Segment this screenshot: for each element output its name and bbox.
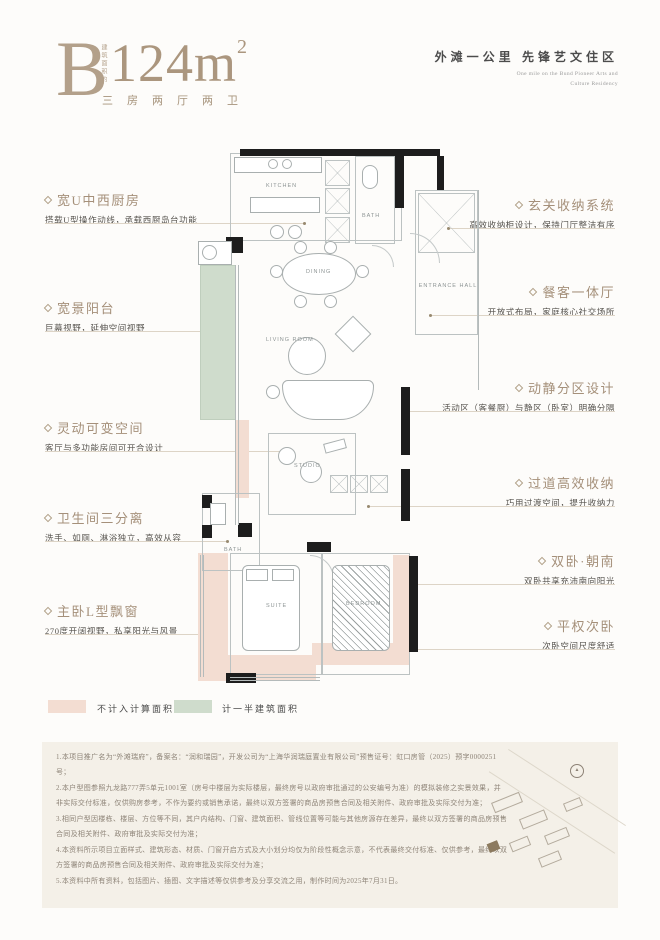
north-arrow-icon: ▲ bbox=[570, 764, 584, 778]
window-line bbox=[230, 677, 320, 678]
room-label-bath1: BATH bbox=[362, 213, 380, 219]
area-exponent: 2 bbox=[237, 36, 248, 58]
dining-chair bbox=[270, 265, 283, 278]
area-value: 124m2 bbox=[110, 36, 248, 90]
room-label-kitchen: KITCHEN bbox=[266, 183, 297, 189]
leader-line bbox=[45, 634, 208, 635]
wall-segment bbox=[307, 542, 331, 552]
stool-icon bbox=[288, 225, 302, 239]
disclaimer-line: 4.本资料所示项目立面样式、建筑形态、材质、门窗开启方式及大小划分均仅为阶段性概… bbox=[56, 843, 508, 873]
road-line bbox=[508, 749, 626, 826]
disclaimer-text: 1.本项目推广名为“外滩瑞府”，备案名：“润和瑞园”，开发公司为“上海华润瑞庭置… bbox=[56, 750, 508, 890]
diamond-bullet-icon bbox=[44, 514, 52, 522]
diamond-bullet-icon bbox=[44, 304, 52, 312]
diamond-bullet-icon bbox=[515, 201, 523, 209]
window-line bbox=[238, 265, 239, 525]
tagline-en-line1: One mile on the Bund Pioneer Arts and bbox=[517, 70, 618, 80]
room-label-living: LIVING ROOM bbox=[266, 337, 314, 343]
tagline-cn: 外滩一公里 先锋艺文住区 bbox=[435, 48, 618, 65]
window-line bbox=[203, 555, 204, 677]
kitchen-counter bbox=[234, 157, 322, 173]
wall-segment bbox=[238, 523, 252, 537]
room-label-suite: SUITE bbox=[266, 603, 287, 609]
diamond-bullet-icon bbox=[515, 479, 523, 487]
dining-chair bbox=[324, 241, 337, 254]
closet bbox=[350, 475, 368, 493]
diamond-bullet-icon bbox=[529, 288, 537, 296]
wall-segment bbox=[240, 149, 440, 156]
disclaimer-line: 3.相同户型因楼栋、楼层、方位等不同，其户内结构、门窗、建筑面积、管线位置等可能… bbox=[56, 812, 508, 842]
balcony-half-area bbox=[200, 265, 236, 420]
dining-chair bbox=[294, 295, 307, 308]
wall-segment bbox=[409, 556, 418, 652]
building-footprint bbox=[519, 809, 548, 829]
washer-drum-icon bbox=[202, 245, 217, 260]
cabinet bbox=[325, 160, 350, 186]
door-arc bbox=[372, 245, 394, 267]
stool-icon bbox=[270, 225, 284, 239]
dining-chair bbox=[356, 265, 369, 278]
dining-chair bbox=[294, 241, 307, 254]
closet bbox=[330, 475, 348, 493]
floor-plan: KITCHEN BATH DINING ENTRANCE HALL LIVING… bbox=[190, 125, 490, 695]
diamond-bullet-icon bbox=[44, 196, 52, 204]
building-footprint bbox=[509, 836, 531, 853]
building-footprint bbox=[563, 797, 583, 812]
side-table bbox=[266, 385, 280, 399]
toilet-icon bbox=[210, 503, 226, 525]
stove-burner-icon bbox=[268, 159, 278, 169]
area-number: 124m bbox=[110, 33, 237, 93]
legend-label-pink: 不计入计算面积 bbox=[97, 702, 174, 715]
armchair bbox=[335, 316, 372, 353]
toilet-icon bbox=[362, 165, 378, 189]
building-footprint bbox=[538, 850, 562, 868]
kitchen-island bbox=[250, 197, 320, 213]
pillow-icon bbox=[246, 569, 268, 581]
disclaimer-panel: 1.本项目推广名为“外滩瑞府”，备案名：“润和瑞园”，开发公司为“上海华润瑞庭置… bbox=[42, 742, 618, 908]
legend-swatch-pink bbox=[48, 700, 86, 713]
wall-segment bbox=[437, 156, 444, 190]
window-line bbox=[235, 265, 236, 525]
disclaimer-line: 5.本资料中所有资料，包括图片、插图、文字描述等仅供参考及分享交流之用，制作时间… bbox=[56, 874, 508, 889]
closet bbox=[370, 475, 388, 493]
diamond-bullet-icon bbox=[515, 384, 523, 392]
diamond-bullet-icon bbox=[44, 607, 52, 615]
dining-chair bbox=[324, 295, 337, 308]
diamond-bullet-icon bbox=[44, 424, 52, 432]
building-footprint bbox=[544, 827, 570, 845]
room-label-dining: DINING bbox=[306, 269, 331, 275]
rooms-spec-label: 三房两厅两卫 bbox=[102, 92, 252, 108]
pillow-icon bbox=[272, 569, 294, 581]
tagline-en-line2: Culture Residency bbox=[517, 80, 618, 90]
window-line bbox=[230, 680, 320, 681]
wall-segment bbox=[401, 469, 410, 521]
cabinet bbox=[325, 188, 350, 214]
room-label-bedroom: BEDROOM bbox=[346, 601, 381, 607]
cabinet bbox=[325, 217, 350, 243]
diamond-bullet-icon bbox=[538, 557, 546, 565]
floorplan-poster: B 建筑面积约 124m2 三房两厅两卫 外滩一公里 先锋艺文住区 One mi… bbox=[0, 0, 660, 940]
tagline-en: One mile on the Bund Pioneer Arts and Cu… bbox=[517, 70, 618, 90]
room-label-entrance: ENTRANCE HALL bbox=[418, 283, 478, 289]
stove-burner-icon bbox=[282, 159, 292, 169]
wall-segment bbox=[202, 525, 212, 538]
wall-line bbox=[478, 190, 479, 390]
disclaimer-line: 1.本项目推广名为“外滩瑞府”，备案名：“润和瑞园”，开发公司为“上海华润瑞庭置… bbox=[56, 750, 508, 780]
wall-segment bbox=[226, 673, 256, 683]
window-line bbox=[200, 555, 201, 677]
legend-label-green: 计一半建筑面积 bbox=[222, 702, 299, 715]
diamond-bullet-icon bbox=[544, 622, 552, 630]
area-prefix-label: 建筑面积约 bbox=[99, 44, 108, 84]
bedroom-bed bbox=[332, 565, 390, 651]
wall-segment bbox=[401, 387, 410, 455]
wall-segment bbox=[395, 156, 404, 208]
room-label-bath2: BATH bbox=[224, 547, 242, 553]
legend-swatch-green bbox=[174, 700, 212, 713]
sofa bbox=[282, 380, 374, 420]
disclaimer-line: 2.本户型图参照九龙路777弄5单元1001室（房号中楼层为实际楼层，最终房号以… bbox=[56, 781, 508, 811]
room-label-studio: STUDIO bbox=[294, 463, 321, 469]
